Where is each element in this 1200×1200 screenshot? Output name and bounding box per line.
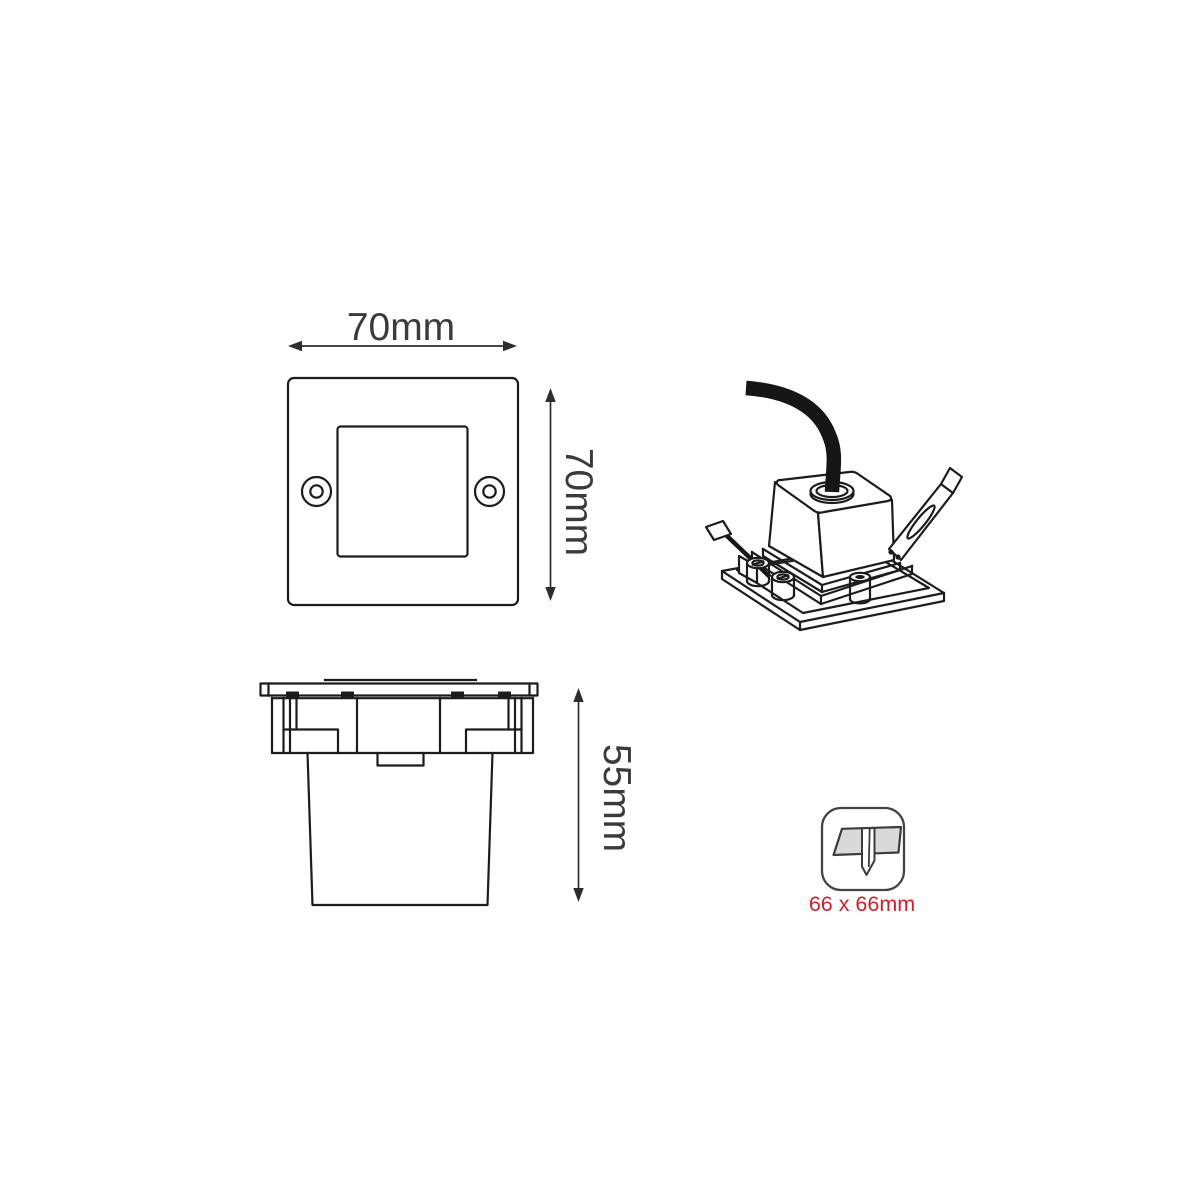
side-flange (261, 680, 538, 698)
front-view: 70mm 70mm (288, 306, 600, 605)
drawing-svg: 70mm 70mm (0, 0, 1200, 1200)
height-dimension-arrow-icon (545, 388, 555, 601)
side-depth-dimension-label: 55mm (595, 744, 638, 852)
recessed-cutout-icon (822, 808, 904, 890)
technical-drawing-sheet: 70mm 70mm (0, 0, 1200, 1200)
front-lens-window (338, 427, 468, 557)
depth-dimension-arrow-icon (573, 688, 583, 902)
rear-isometric-view (706, 388, 962, 630)
side-recessed-can (308, 753, 493, 905)
spring-clip-right (888, 468, 962, 560)
cutout-size-label: 66 x 66mm (809, 892, 915, 916)
side-mounting-box (272, 692, 533, 754)
cutout-badge: 66 x 66mm (809, 808, 915, 916)
side-view: 55mm (261, 680, 639, 905)
front-height-dimension-label: 70mm (557, 448, 600, 556)
front-width-dimension-label: 70mm (347, 306, 455, 349)
